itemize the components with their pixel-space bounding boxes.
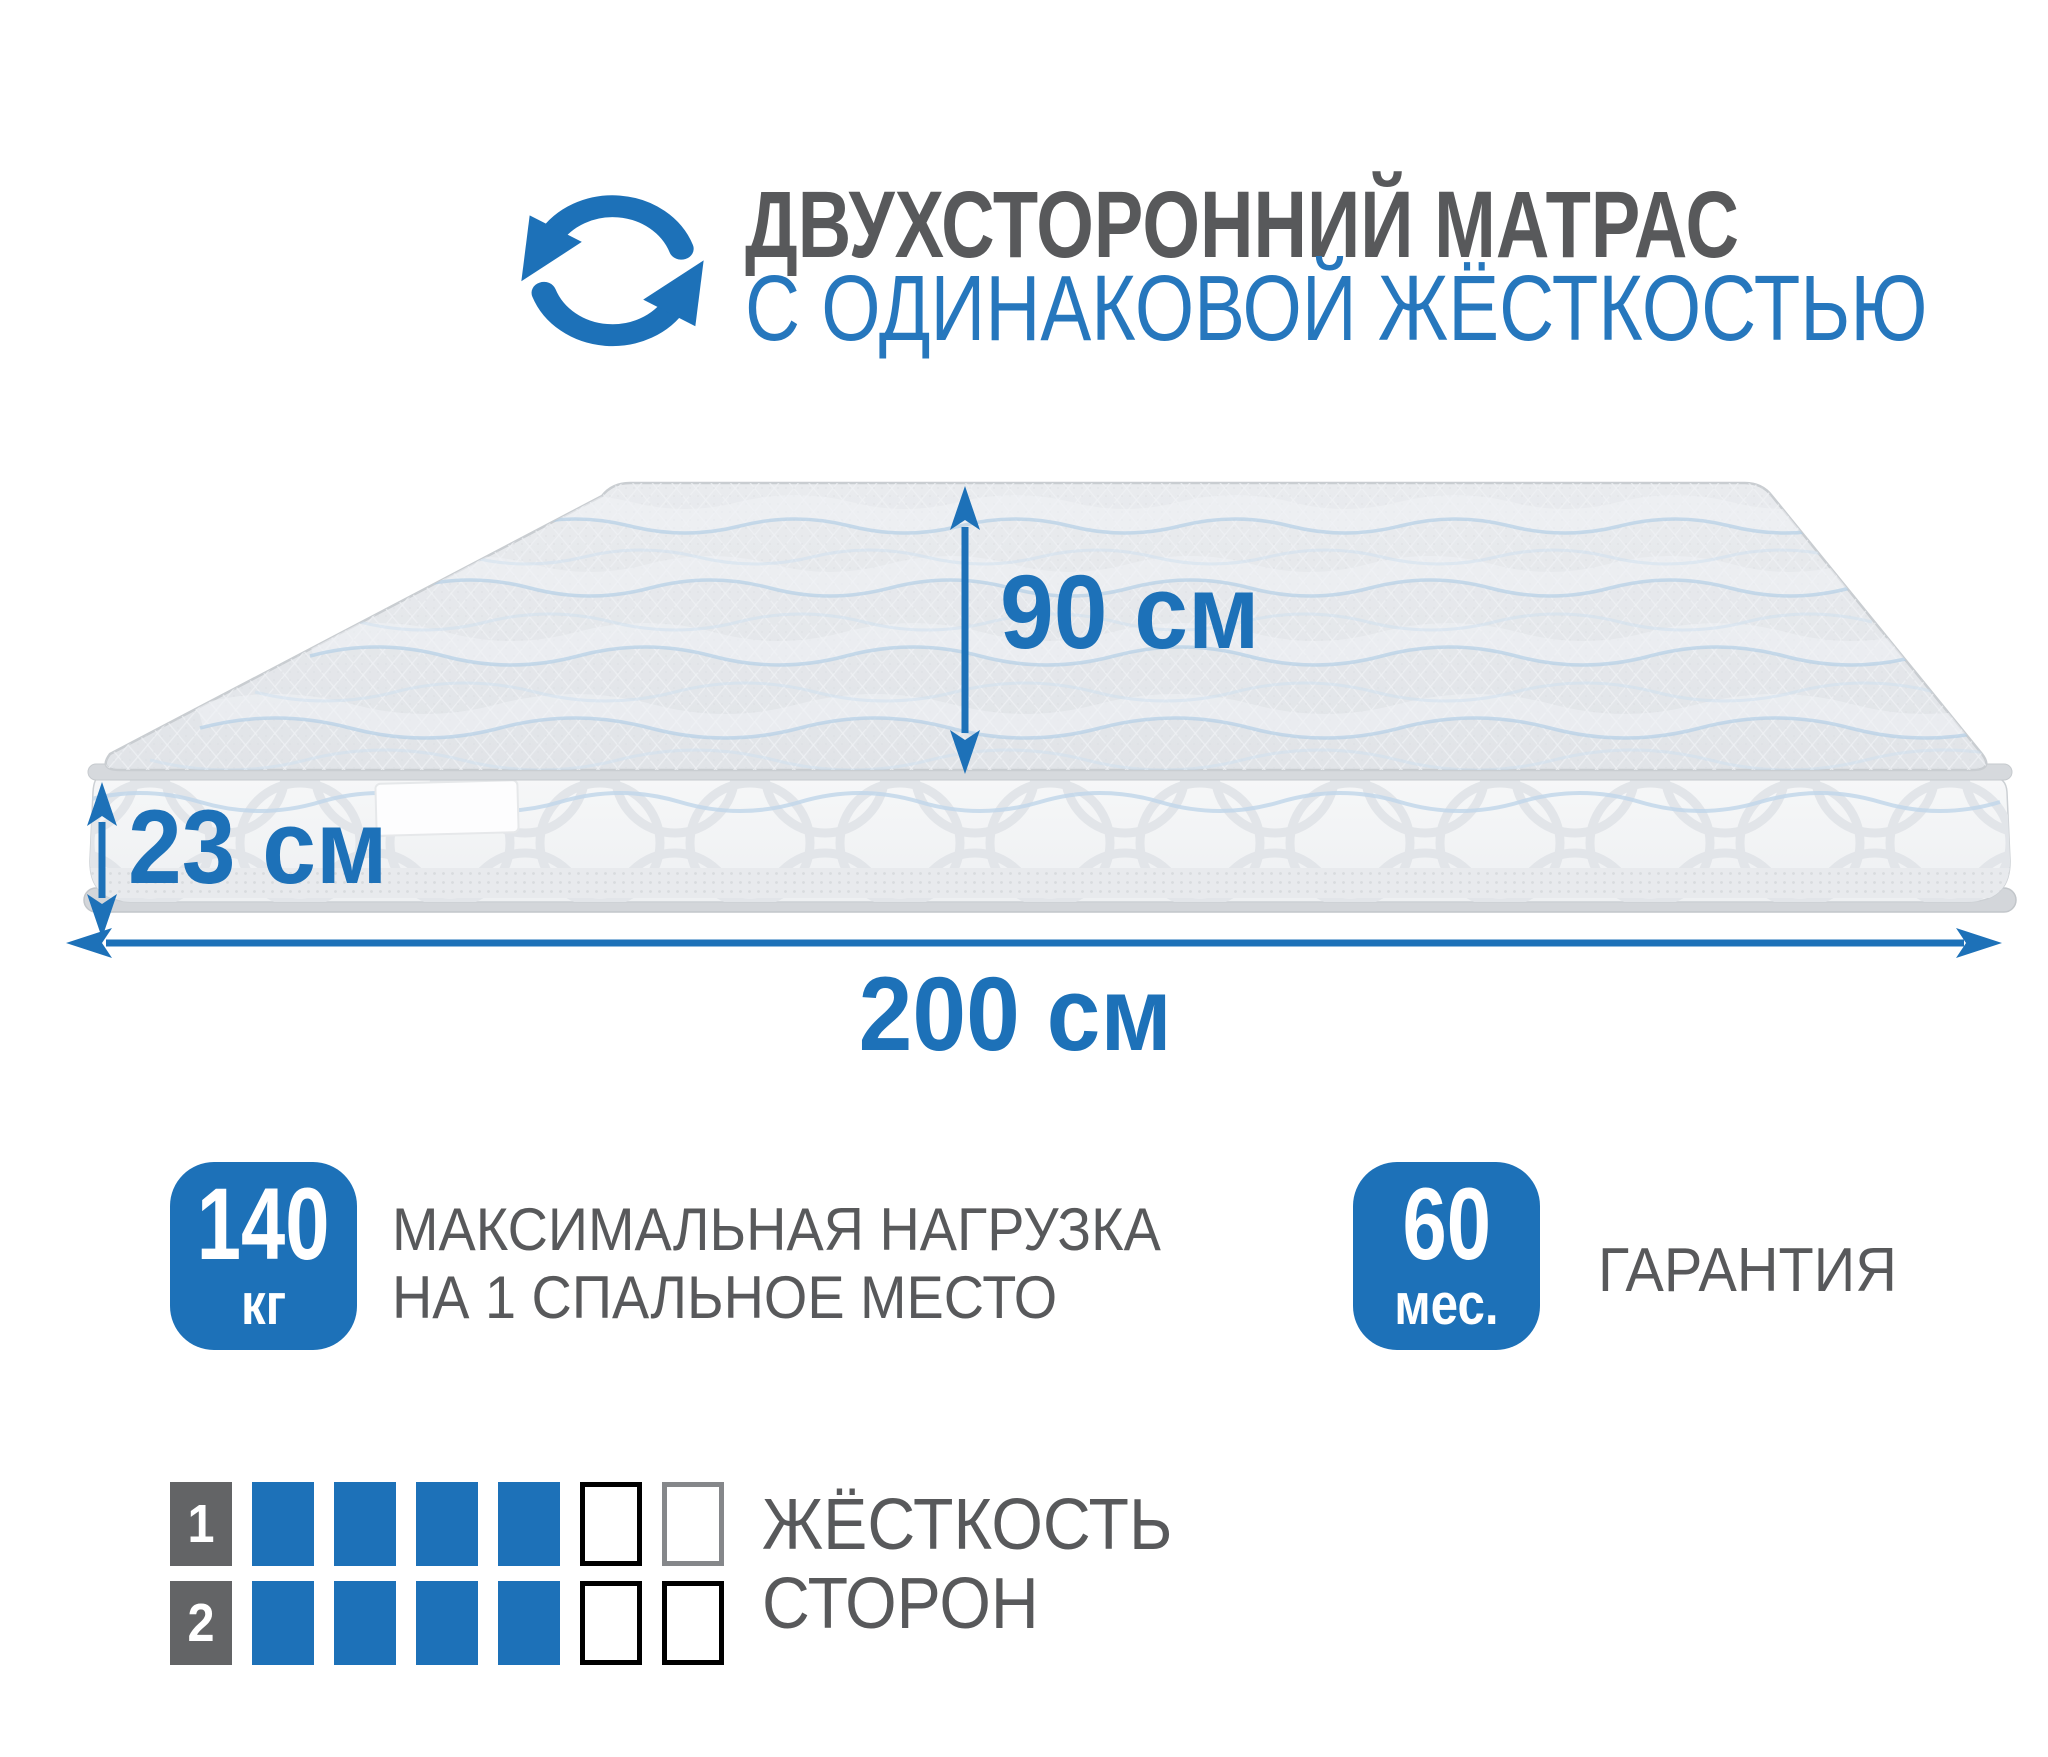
max-load-unit: кг: [241, 1276, 286, 1334]
hardness-cell-filled: [334, 1581, 396, 1665]
hardness-row: 1: [170, 1482, 724, 1566]
title-line2: С ОДИНАКОВОЙ ЖЁСТКОСТЬЮ: [745, 262, 1927, 355]
hardness-cell-empty: [662, 1482, 724, 1566]
warranty-value: 60: [1402, 1178, 1491, 1272]
hardness-cell-filled: [498, 1482, 560, 1566]
hardness-cell-filled: [334, 1482, 396, 1566]
dimension-width-label: 90 см: [1000, 560, 1282, 665]
hardness-cell-filled: [252, 1581, 314, 1665]
dimension-length-label: 200 см: [540, 962, 1490, 1067]
warranty-text: ГАРАНТИЯ: [1598, 1236, 1897, 1306]
hardness-cell-empty: [580, 1581, 642, 1665]
length-arrow: [66, 928, 2002, 958]
hardness-row-number: 1: [170, 1482, 232, 1566]
max-load-value: 140: [197, 1178, 330, 1272]
hardness-cell-empty: [580, 1482, 642, 1566]
hardness-label-line2: СТОРОН: [762, 1565, 1172, 1644]
hardness-label-line1: ЖЁСТКОСТЬ: [762, 1486, 1172, 1565]
max-load-text-line1: МАКСИМАЛЬНАЯ НАГРУЗКА: [392, 1196, 1161, 1264]
hardness-scale: 12: [170, 1482, 724, 1680]
hardness-cell-filled: [416, 1482, 478, 1566]
max-load-text-line2: НА 1 СПАЛЬНОЕ МЕСТО: [392, 1264, 1161, 1332]
warranty-badge: 60 мес.: [1353, 1162, 1540, 1350]
max-load-badge: 140 кг: [170, 1162, 357, 1350]
rotate-arrows-icon: [505, 172, 720, 362]
hardness-row-number: 2: [170, 1581, 232, 1665]
hardness-row: 2: [170, 1581, 724, 1665]
hardness-cell-filled: [252, 1482, 314, 1566]
hardness-cell-filled: [498, 1581, 560, 1665]
dimension-thickness-label: 23 см: [128, 795, 410, 900]
hardness-cell-empty: [662, 1581, 724, 1665]
hardness-label: ЖЁСТКОСТЬ СТОРОН: [762, 1486, 1172, 1644]
warranty-unit: мес.: [1394, 1276, 1498, 1334]
max-load-text: МАКСИМАЛЬНАЯ НАГРУЗКА НА 1 СПАЛЬНОЕ МЕСТ…: [392, 1196, 1161, 1332]
hardness-cell-filled: [416, 1581, 478, 1665]
